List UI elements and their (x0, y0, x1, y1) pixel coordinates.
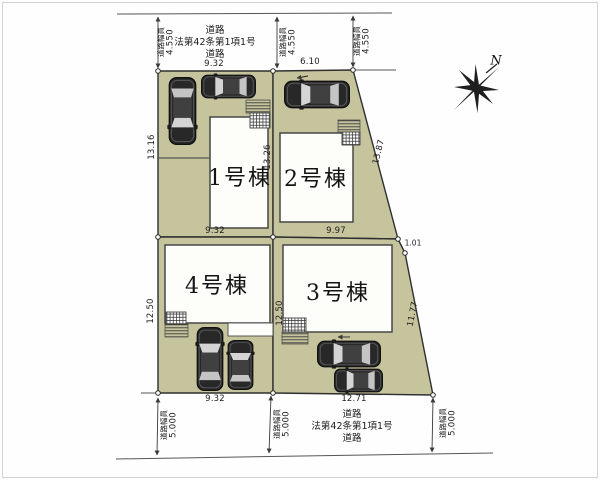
car-icon (202, 73, 256, 99)
bottom-road-label: 道路 法第42条第1項1号 道路 (311, 409, 392, 445)
building-3-label: 3号棟 (306, 275, 370, 307)
building-1-label: 1号棟 (208, 160, 272, 192)
road-name-line: 道路 (342, 409, 361, 420)
road-width-label-top-center: 道路幅員 4.550 (279, 27, 298, 57)
road-name-line: 法第42条第1項1号 (311, 421, 392, 432)
dim-left-upper: 13.16 (147, 134, 157, 159)
road-width-value: 5.000 (169, 410, 179, 440)
compass-icon (454, 64, 499, 113)
road-width-value: 4.550 (362, 26, 372, 56)
building-2-label: 2号棟 (284, 161, 348, 193)
dim-mid-2: 9.97 (326, 226, 346, 236)
road-width-label-bottom-right: 道路幅員 5.000 (439, 408, 458, 438)
dim-bottom-1: 9.32 (205, 394, 225, 404)
car-icon (285, 79, 350, 109)
site-plan: 道路 法第42条第1項1号 道路 道路 法第42条第1項1号 道路 道路幅員 4… (0, 0, 600, 480)
road-width-value: 5.000 (282, 409, 292, 439)
road-width-label-bottom-center: 道路幅員 5.000 (273, 409, 292, 439)
building-4-label: 4号棟 (185, 268, 249, 300)
road-width-value: 4.550 (166, 27, 176, 57)
car-icon (226, 341, 254, 390)
car-icon (318, 339, 381, 368)
dim-left-lower: 12.50 (146, 298, 156, 323)
road-name-line: 道路 (205, 25, 224, 36)
road-name-line: 法第42条第1項1号 (174, 37, 255, 48)
building-4-porch (228, 323, 273, 336)
car-icon (195, 328, 224, 391)
top-road-label: 道路 法第42条第1項1号 道路 (174, 25, 255, 61)
dim-top-1: 9.32 (204, 59, 224, 69)
car-icon (167, 78, 197, 145)
road-width-value: 4.550 (288, 27, 298, 57)
site-plan-drawing (0, 0, 600, 480)
road-width-value: 5.000 (448, 408, 458, 438)
compass-north-label: N (490, 54, 501, 69)
dim-top-2: 6.10 (300, 57, 320, 67)
road-width-label-top-left: 道路幅員 4.550 (157, 27, 176, 57)
road-width-label-top-right: 道路幅員 4.550 (353, 26, 372, 56)
dim-slant-jog: 1.01 (405, 239, 422, 248)
car-icon (334, 367, 382, 393)
dim-bottom-2: 12.71 (341, 394, 366, 404)
dim-center-lower: 12.50 (275, 300, 285, 325)
entrance-steps-icon-lot3 (282, 318, 308, 344)
entrance-steps-icon-lot4 (165, 312, 188, 337)
road-name-line: 道路 (342, 433, 361, 444)
dim-mid-1: 9.32 (205, 226, 225, 236)
road-width-label-bottom-left: 道路幅員 5.000 (160, 410, 179, 440)
